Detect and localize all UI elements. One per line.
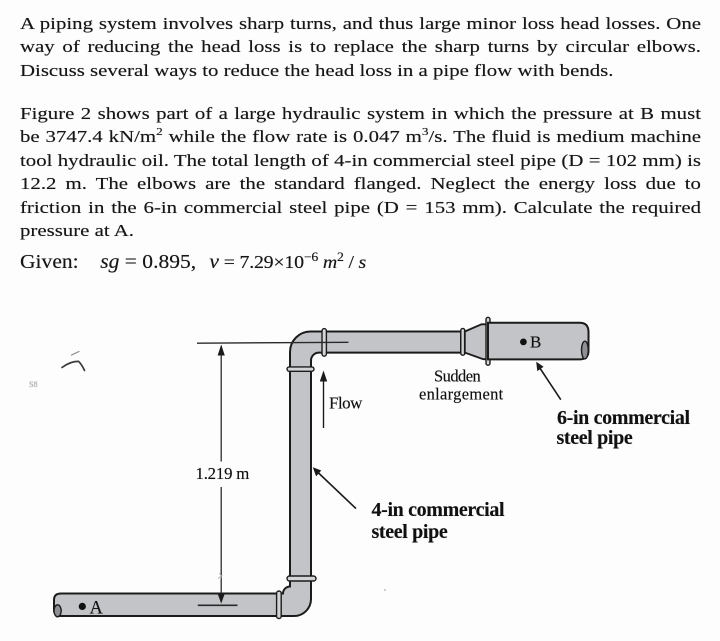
svg-text:steel pipe: steel pipe (557, 427, 633, 449)
svg-text:1.219 m: 1.219 m (196, 464, 250, 483)
svg-text:enlargement: enlargement (419, 384, 504, 403)
svg-text:S8: S8 (29, 380, 37, 389)
svg-text:6-in commercial: 6-in commercial (557, 407, 690, 429)
svg-text:B: B (530, 333, 541, 352)
svg-text:4-in commercial: 4-in commercial (372, 499, 505, 521)
svg-text:Flow: Flow (329, 394, 363, 413)
svg-text:A: A (90, 599, 104, 619)
svg-text:Sudden: Sudden (434, 366, 481, 385)
svg-text:steel pipe: steel pipe (372, 521, 448, 543)
